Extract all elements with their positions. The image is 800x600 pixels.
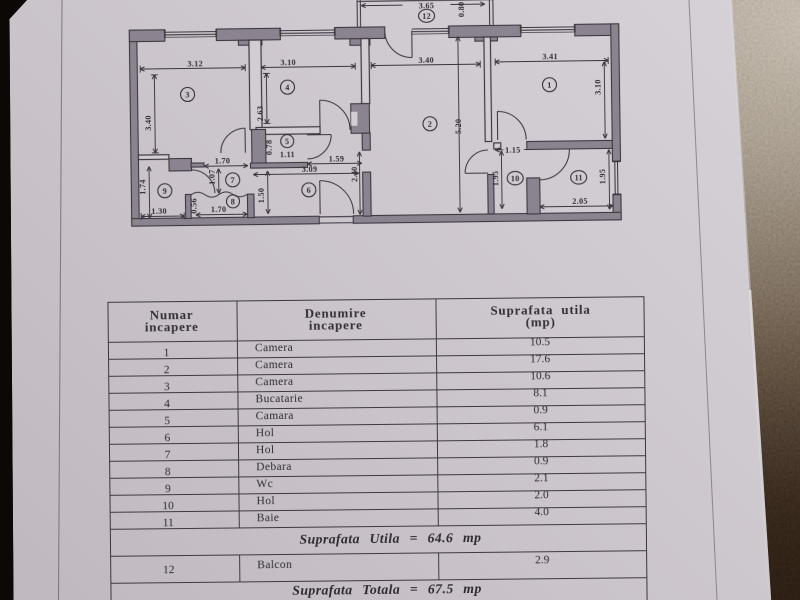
svg-text:1.11: 1.11 <box>280 150 295 159</box>
svg-text:3.10: 3.10 <box>593 79 602 95</box>
svg-text:0.56: 0.56 <box>189 198 198 214</box>
svg-text:1.74: 1.74 <box>138 179 147 195</box>
svg-text:3.41: 3.41 <box>542 52 558 61</box>
svg-text:2: 2 <box>428 120 433 129</box>
svg-text:2.63: 2.63 <box>256 106 265 122</box>
svg-text:3.40: 3.40 <box>144 115 153 131</box>
svg-text:1.30: 1.30 <box>151 207 167 216</box>
svg-text:3.40: 3.40 <box>418 56 434 65</box>
svg-text:1.59: 1.59 <box>329 154 345 163</box>
svg-text:10: 10 <box>511 174 520 183</box>
svg-text:4: 4 <box>285 83 290 92</box>
svg-text:1.07: 1.07 <box>208 169 217 185</box>
svg-text:3.09: 3.09 <box>302 165 318 174</box>
svg-text:5: 5 <box>285 137 290 146</box>
svg-text:1: 1 <box>547 81 552 90</box>
svg-text:1.50: 1.50 <box>257 188 266 204</box>
svg-text:3.10: 3.10 <box>280 58 296 67</box>
svg-text:1.15: 1.15 <box>505 146 521 155</box>
svg-text:2.05: 2.05 <box>572 197 588 206</box>
svg-text:3.12: 3.12 <box>187 59 203 68</box>
svg-text:1.95: 1.95 <box>491 171 500 187</box>
svg-text:0.80: 0.80 <box>457 2 466 18</box>
svg-text:5.20: 5.20 <box>454 119 463 135</box>
svg-text:1.95: 1.95 <box>598 169 607 185</box>
svg-text:1.70: 1.70 <box>211 205 227 214</box>
svg-text:0.78: 0.78 <box>265 140 274 156</box>
svg-text:9: 9 <box>163 187 168 196</box>
svg-text:6: 6 <box>307 186 312 195</box>
svg-text:7: 7 <box>230 176 235 185</box>
svg-text:1.70: 1.70 <box>215 156 231 165</box>
svg-text:8: 8 <box>231 198 236 207</box>
svg-text:3: 3 <box>185 91 190 100</box>
svg-text:12: 12 <box>422 12 431 21</box>
svg-text:2.40: 2.40 <box>350 166 359 182</box>
svg-text:11: 11 <box>574 173 582 182</box>
